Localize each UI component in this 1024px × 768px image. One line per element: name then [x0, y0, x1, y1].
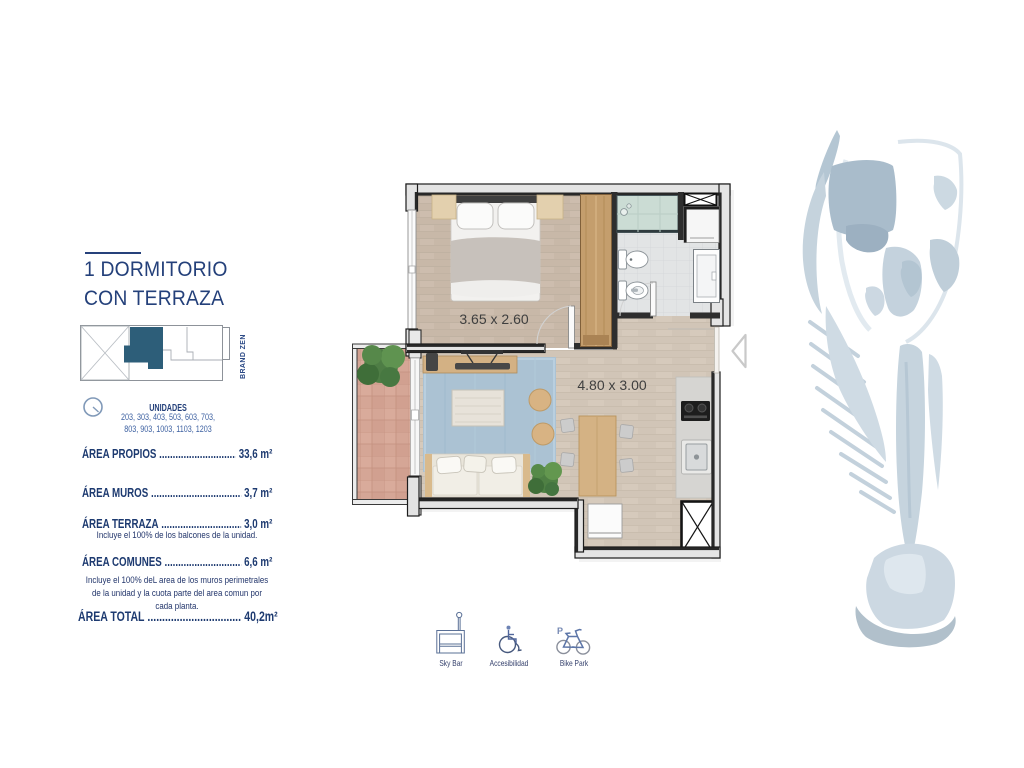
svg-text:P: P	[557, 626, 563, 636]
svg-text:4.80 x 3.00: 4.80 x 3.00	[577, 377, 646, 393]
svg-text:3.65 x 2.60: 3.65 x 2.60	[459, 311, 528, 327]
